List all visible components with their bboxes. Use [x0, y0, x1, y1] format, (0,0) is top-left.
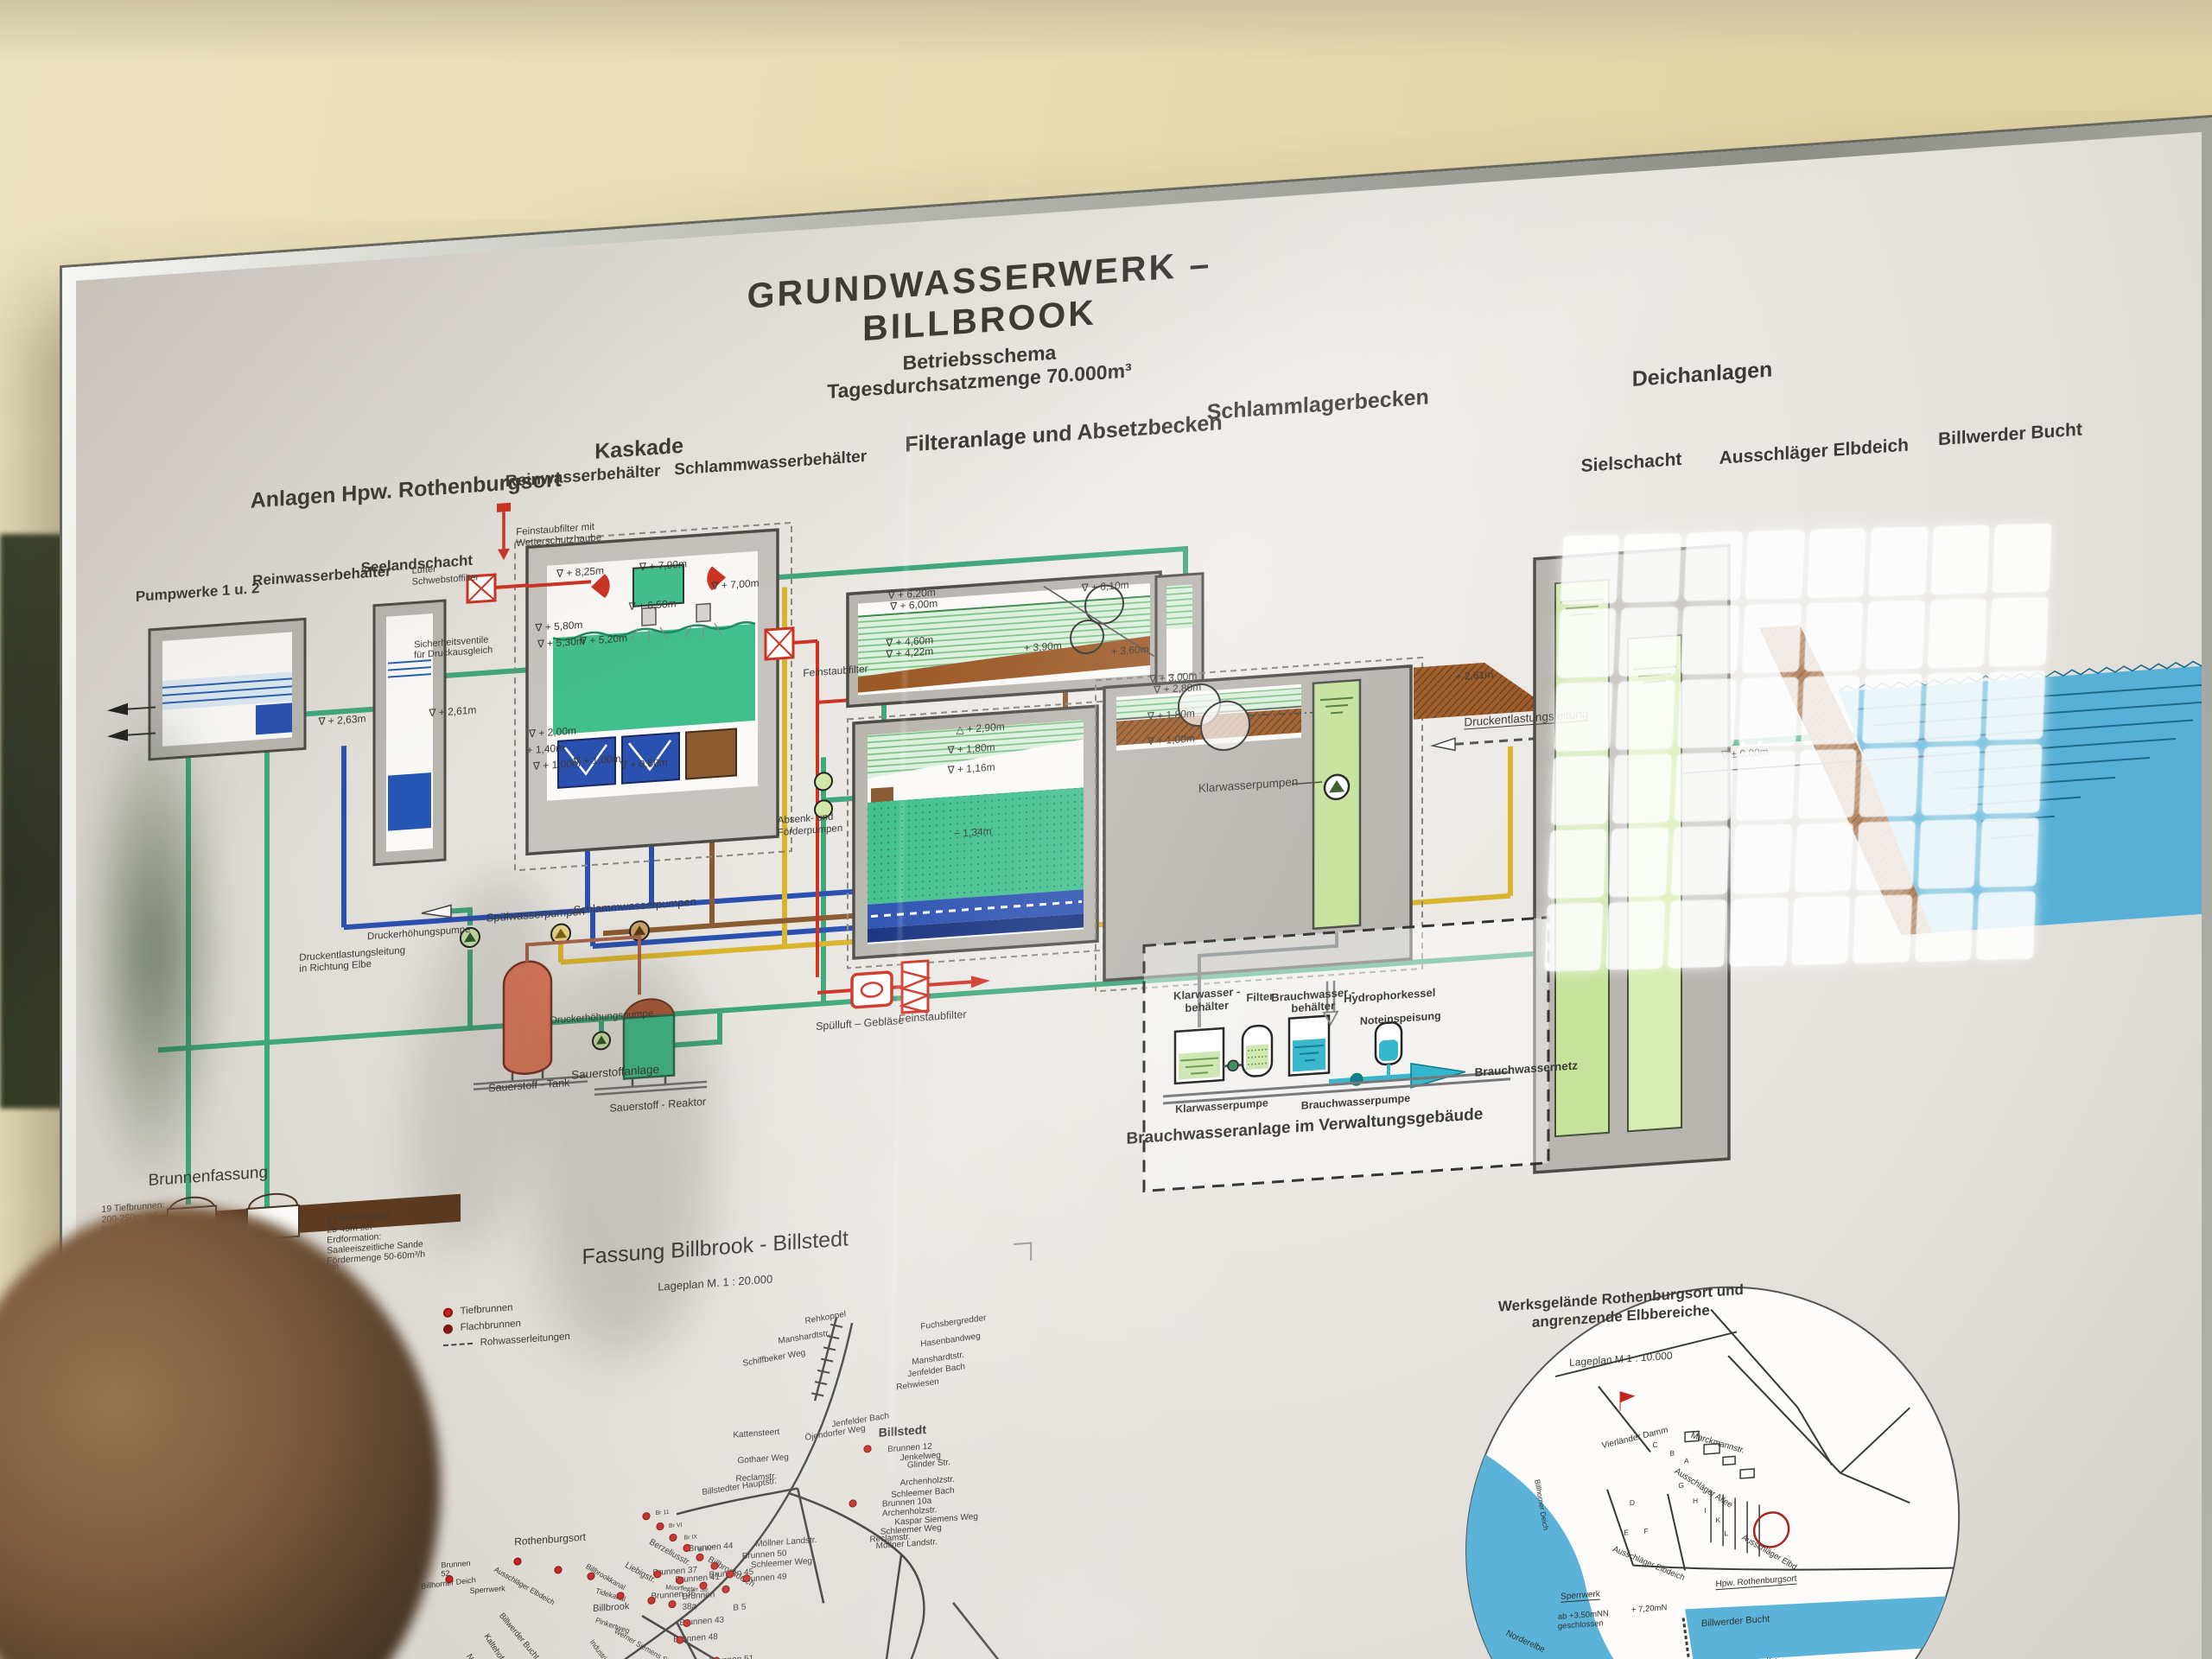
- photo-scene: GRUNDWASSERWERK – BILLBROOK Betriebssche…: [0, 0, 2212, 1659]
- ceiling-shadow: [0, 0, 2212, 60]
